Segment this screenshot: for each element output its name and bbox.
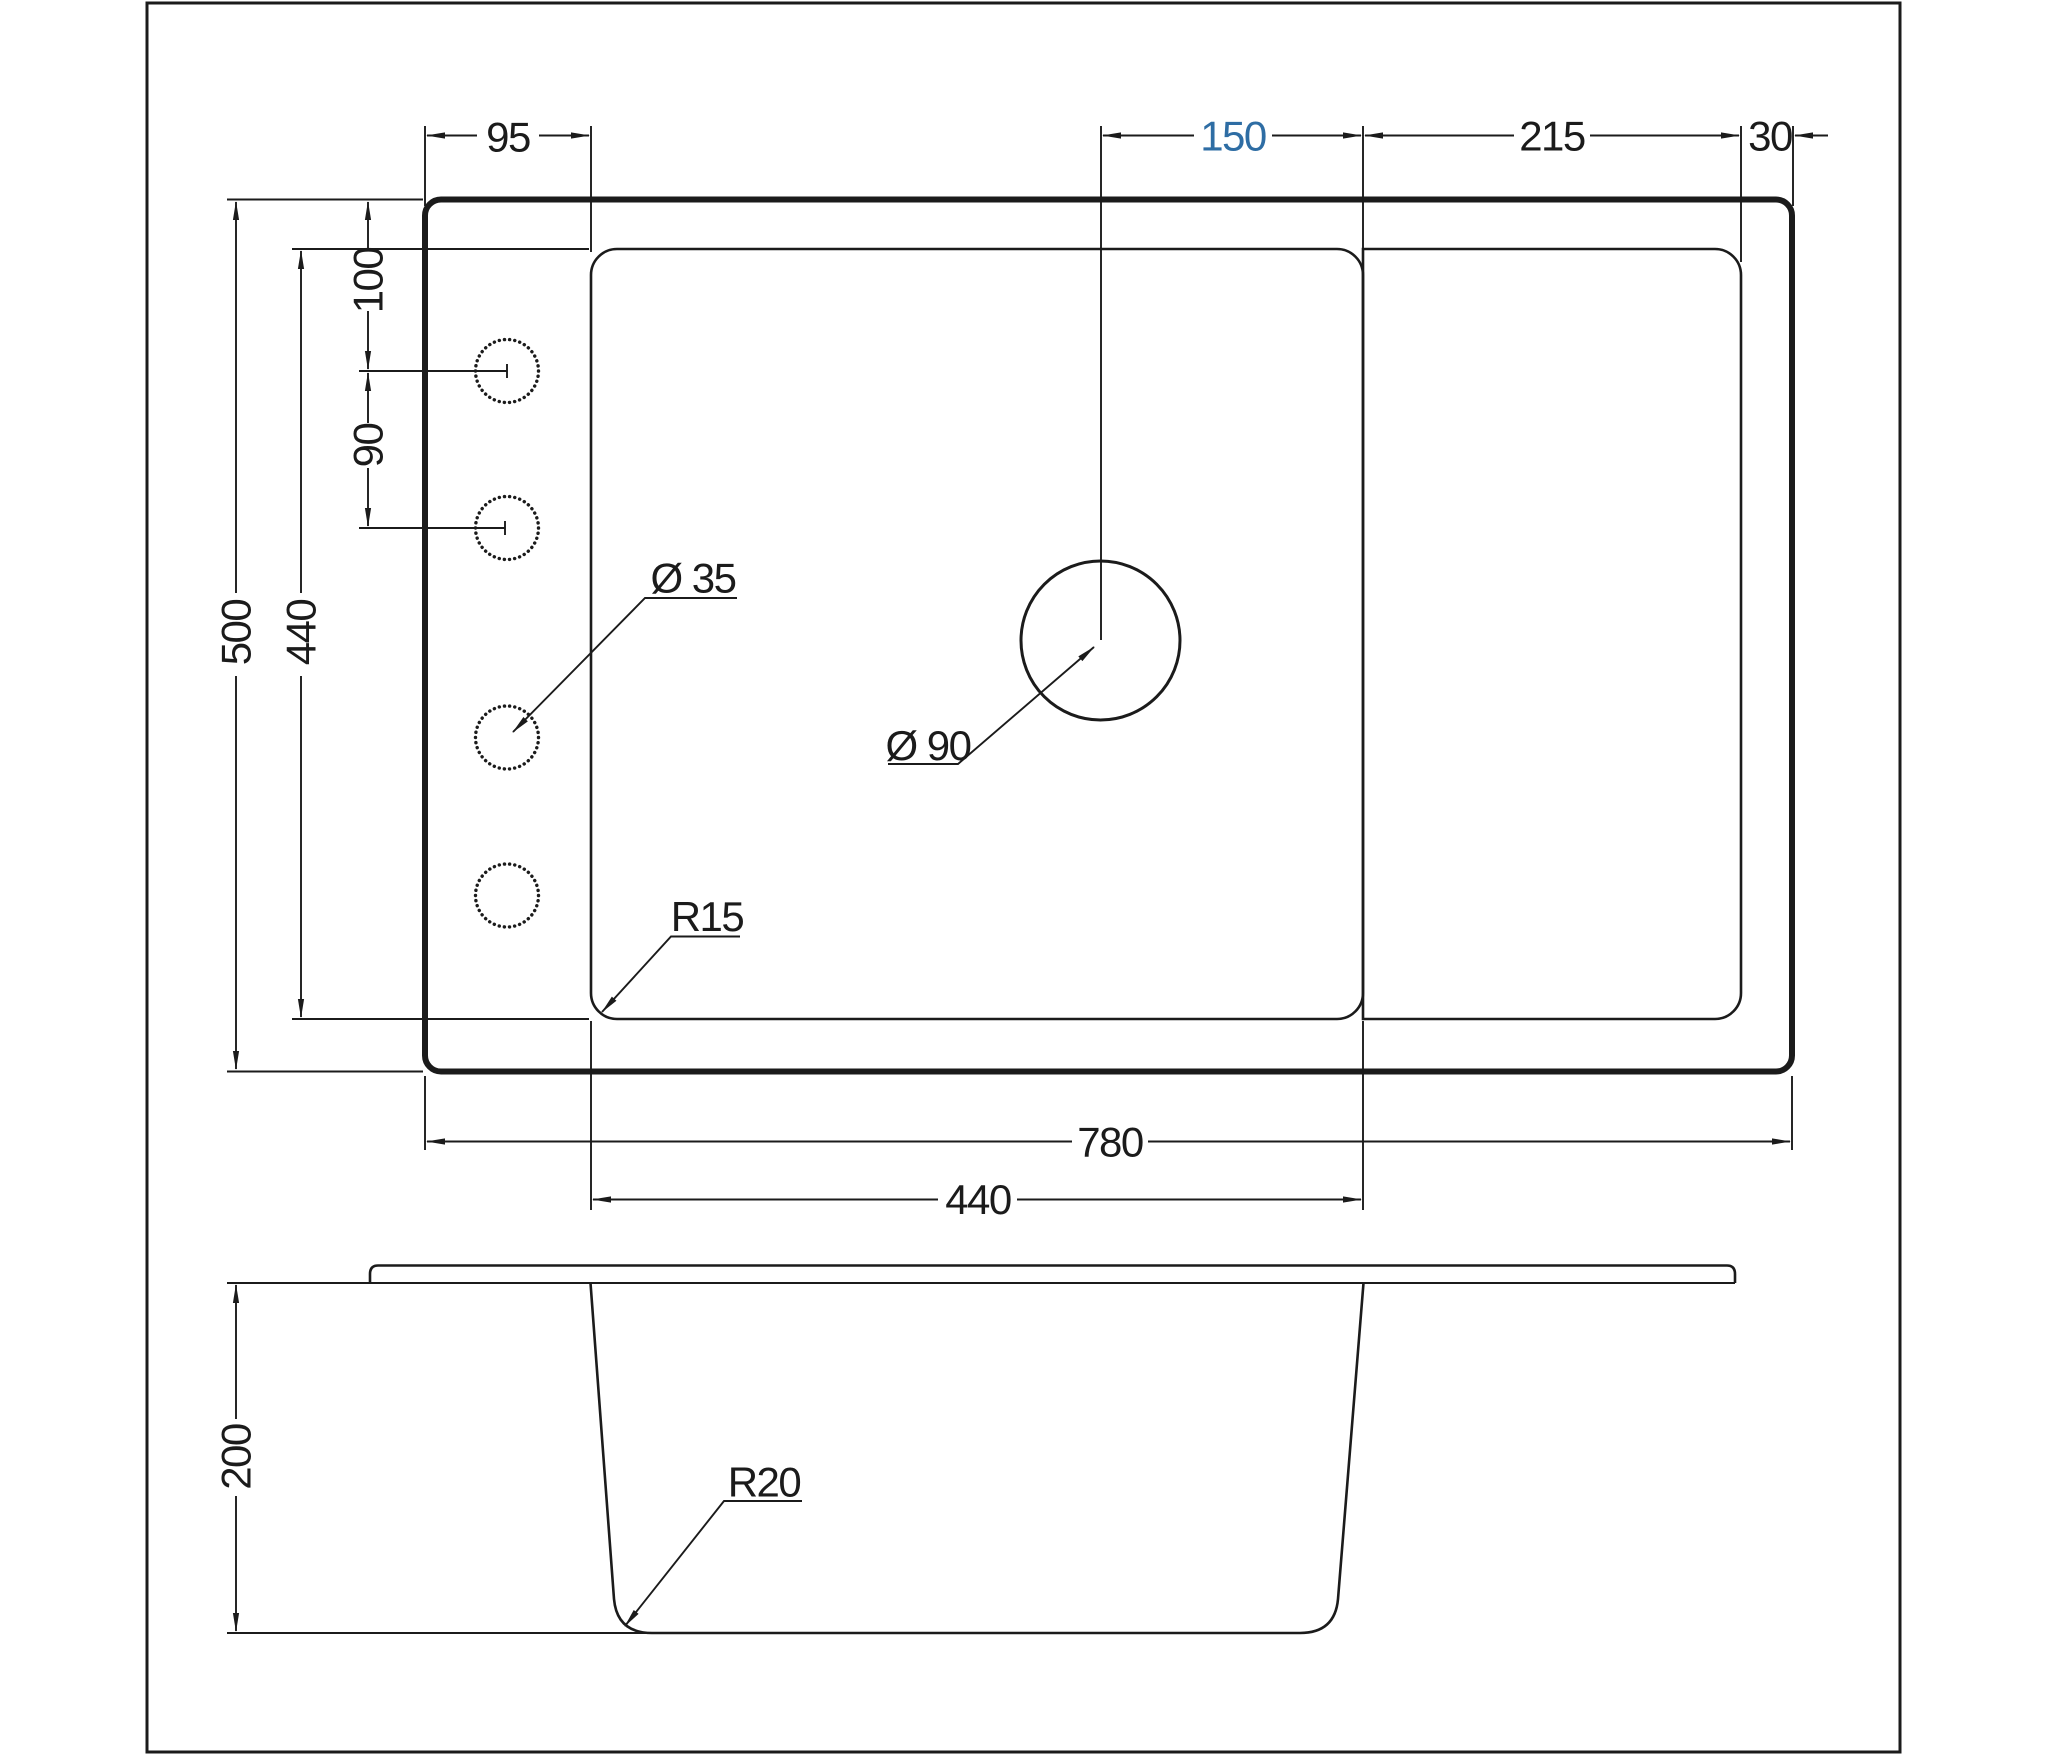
svg-text:500: 500 bbox=[213, 600, 260, 666]
svg-text:780: 780 bbox=[1077, 1119, 1143, 1166]
svg-text:100: 100 bbox=[345, 248, 392, 314]
svg-text:440: 440 bbox=[278, 600, 325, 666]
svg-text:30: 30 bbox=[1748, 113, 1792, 160]
svg-text:200: 200 bbox=[213, 1424, 260, 1490]
svg-text:R15: R15 bbox=[671, 893, 744, 940]
svg-text:95: 95 bbox=[486, 114, 530, 161]
svg-text:150: 150 bbox=[1200, 113, 1266, 160]
svg-text:440: 440 bbox=[945, 1176, 1011, 1223]
svg-text:90: 90 bbox=[345, 424, 392, 468]
svg-text:R20: R20 bbox=[728, 1459, 801, 1506]
svg-text:215: 215 bbox=[1519, 113, 1585, 160]
svg-text:Ø 90: Ø 90 bbox=[885, 722, 970, 769]
svg-text:Ø 35: Ø 35 bbox=[650, 555, 735, 602]
